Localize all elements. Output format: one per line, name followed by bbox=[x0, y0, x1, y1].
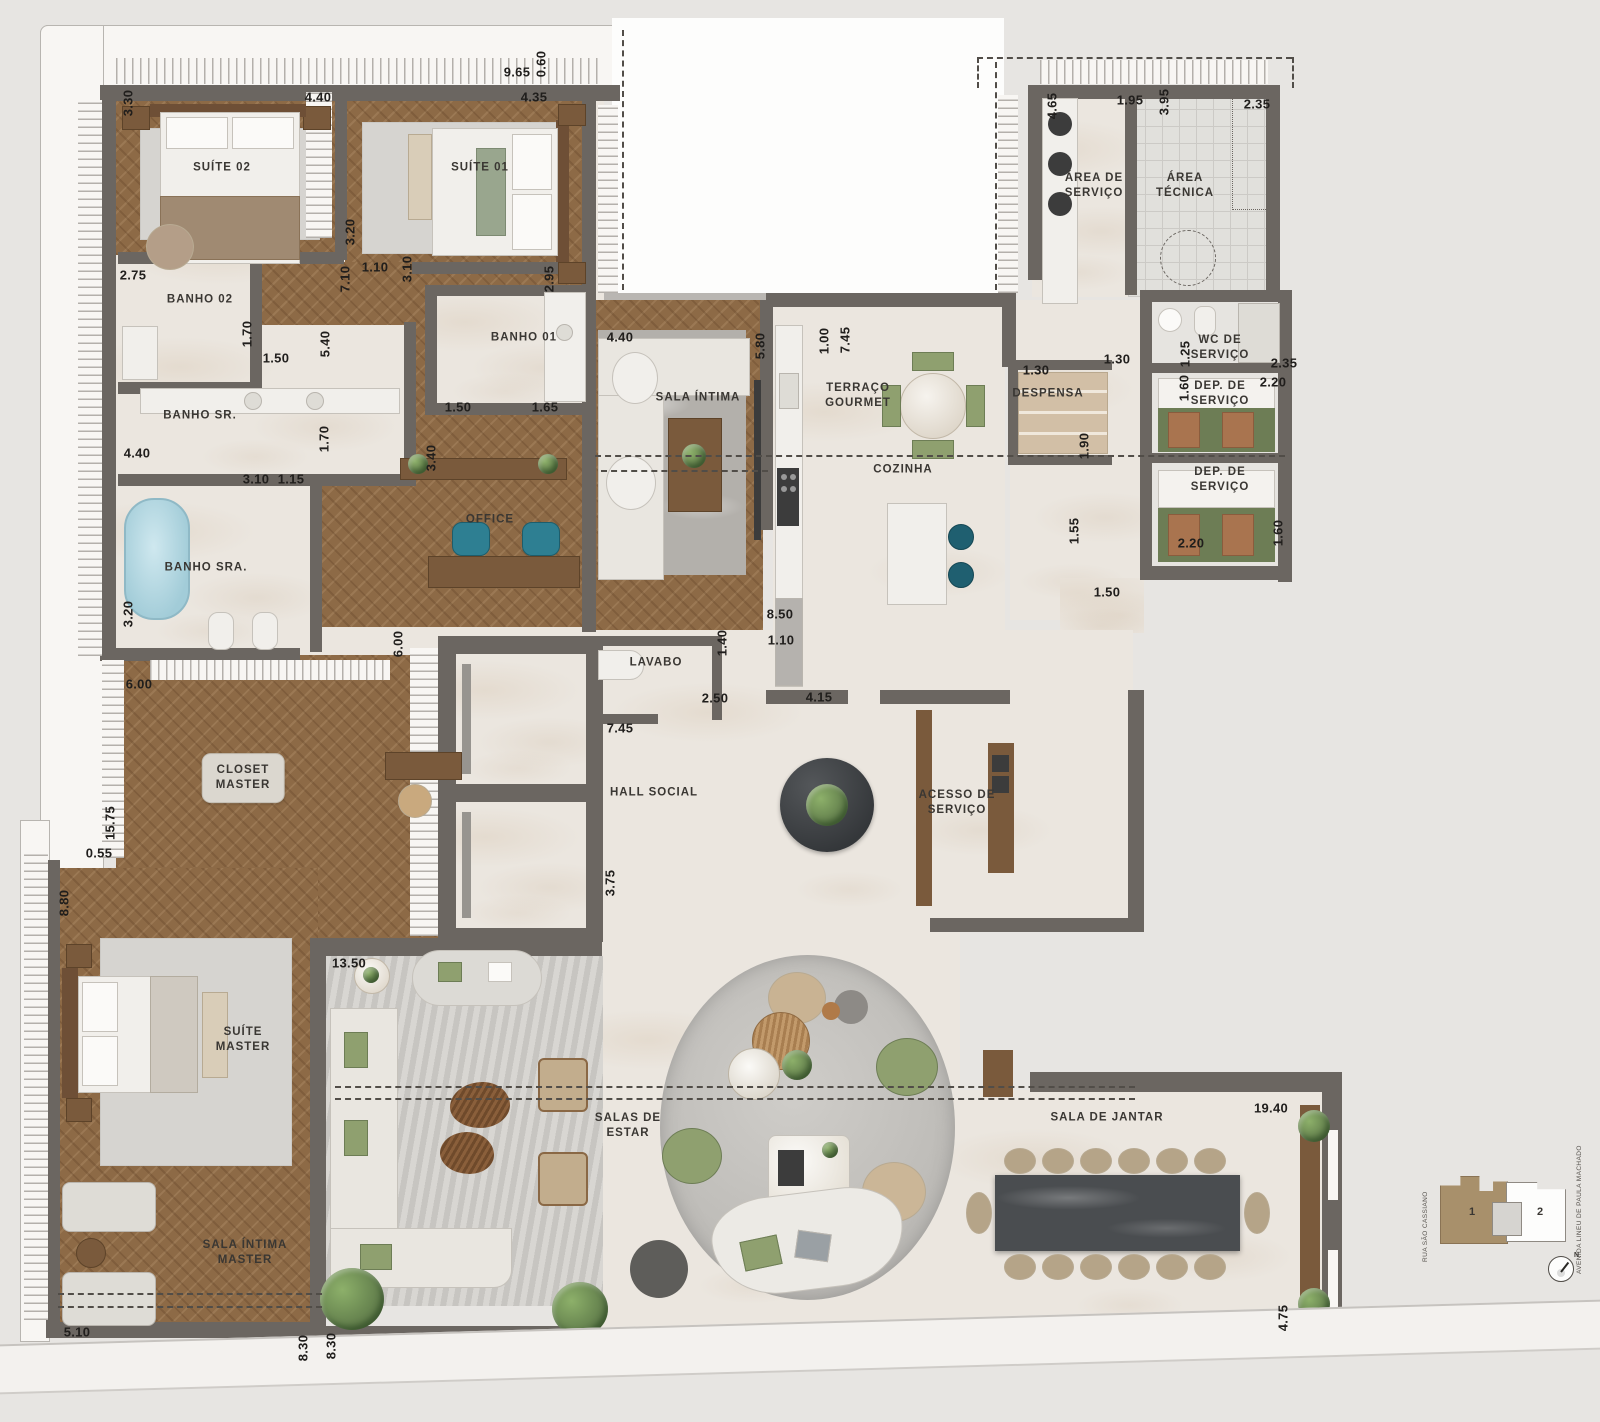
wall bbox=[1125, 95, 1137, 295]
void-dashed-left bbox=[622, 30, 624, 290]
projection-line bbox=[335, 1086, 1135, 1088]
room-label: SALAS DE ESTAR bbox=[595, 1111, 661, 1141]
wc-toilet bbox=[1194, 306, 1216, 336]
dimension-label: 7.45 bbox=[607, 721, 634, 736]
wc-sink bbox=[1158, 308, 1182, 332]
cushion bbox=[344, 1032, 368, 1068]
burner bbox=[781, 486, 787, 492]
plant bbox=[782, 1050, 812, 1080]
sink bbox=[556, 324, 573, 341]
room-label: WC DE SERVIÇO bbox=[1191, 333, 1250, 363]
open-void bbox=[612, 18, 1004, 296]
dining-chair bbox=[1042, 1254, 1074, 1280]
wall bbox=[1008, 360, 1018, 464]
pillow bbox=[512, 134, 552, 190]
dimension-label: 5.10 bbox=[64, 1325, 91, 1340]
plant bbox=[806, 784, 848, 826]
bed-headboard bbox=[62, 968, 78, 1098]
dimension-label: 1.30 bbox=[1104, 352, 1131, 367]
window-strip-bottom-left bbox=[24, 848, 48, 1320]
keyplan-unit-1-number: 1 bbox=[1469, 1206, 1475, 1218]
room-label: HALL SOCIAL bbox=[610, 786, 698, 801]
equipment-circle bbox=[1160, 230, 1216, 286]
dimension-label: 2.50 bbox=[702, 691, 729, 706]
tv-panel bbox=[754, 380, 761, 540]
dining-chair bbox=[1156, 1148, 1188, 1174]
dimension-label: 1.30 bbox=[1023, 363, 1050, 378]
dining-chair bbox=[1004, 1254, 1036, 1280]
window-strip-service bbox=[1040, 60, 1268, 84]
dining-chair bbox=[1080, 1254, 1112, 1280]
window-strip-void-right bbox=[998, 95, 1018, 293]
dining-chair bbox=[966, 1192, 992, 1234]
room-label: ÁREA DE SERVIÇO bbox=[1065, 171, 1124, 201]
room-label: SALA DE JANTAR bbox=[1050, 1111, 1163, 1126]
equipment-outline bbox=[1232, 96, 1276, 210]
wall bbox=[588, 636, 722, 646]
projection-line bbox=[601, 470, 768, 472]
room-label: OFFICE bbox=[466, 513, 514, 528]
gourmet-chair bbox=[912, 352, 954, 371]
dimension-label: 4.40 bbox=[607, 330, 634, 345]
dimension-label: 1.10 bbox=[768, 633, 795, 648]
room-label: DEP. DE SERVIÇO bbox=[1191, 465, 1250, 495]
stool bbox=[948, 524, 974, 550]
gourmet-table bbox=[900, 373, 966, 439]
dimension-label: 9.65 bbox=[504, 65, 531, 80]
north-compass-icon bbox=[1548, 1256, 1574, 1282]
office-desk bbox=[428, 556, 580, 588]
dimension-label: 3.95 bbox=[1157, 89, 1172, 116]
dimension-label: 2.20 bbox=[1260, 375, 1287, 390]
pantry-shelves bbox=[1018, 372, 1108, 454]
wall bbox=[930, 918, 1144, 932]
dining-chair bbox=[1156, 1254, 1188, 1280]
dimension-label: 1.70 bbox=[317, 426, 332, 453]
dimension-label: 4.35 bbox=[521, 90, 548, 105]
dining-chair bbox=[1194, 1148, 1226, 1174]
room-label: CLOSET MASTER bbox=[202, 753, 285, 803]
dimension-label: 2.35 bbox=[1271, 356, 1298, 371]
kitchen-island bbox=[887, 503, 947, 605]
room-label: ÁREA TÉCNICA bbox=[1156, 171, 1214, 201]
dimension-label: 3.20 bbox=[121, 601, 136, 628]
dimension-label: 4.15 bbox=[806, 690, 833, 705]
dimension-label: 1.50 bbox=[445, 400, 472, 415]
side-table bbox=[76, 1238, 106, 1268]
stool bbox=[948, 562, 974, 588]
wall bbox=[1140, 290, 1290, 302]
dining-chair bbox=[1244, 1192, 1270, 1234]
room-label: SALA ÍNTIMA bbox=[656, 391, 741, 406]
wall bbox=[1028, 85, 1042, 280]
boundary-dashed bbox=[1292, 57, 1294, 88]
dimension-label: 1.60 bbox=[1177, 375, 1192, 402]
sink bbox=[306, 392, 324, 410]
organic-table bbox=[440, 1132, 494, 1174]
room-label: ACESSO DE SERVIÇO bbox=[919, 788, 996, 818]
kitchen-sink bbox=[779, 373, 799, 409]
wall bbox=[1030, 1072, 1342, 1092]
wall bbox=[310, 938, 326, 1334]
dimension-label: 3.30 bbox=[121, 90, 136, 117]
wall bbox=[712, 646, 722, 720]
window-strip-left bbox=[78, 100, 102, 656]
dining-chair bbox=[1004, 1148, 1036, 1174]
counter-banho-01 bbox=[544, 292, 586, 402]
north-label: N bbox=[1574, 1252, 1579, 1259]
room-label: TERRAÇO GOURMET bbox=[825, 381, 891, 411]
plant bbox=[1298, 1110, 1330, 1142]
office-chair bbox=[522, 522, 560, 556]
dimension-label: 3.10 bbox=[243, 472, 270, 487]
keyplan-street-left: RUA SÃO CASSIANO bbox=[1422, 1172, 1429, 1262]
dimension-label: 2.35 bbox=[1244, 97, 1271, 112]
wall bbox=[1150, 363, 1290, 373]
terrace-chair bbox=[538, 1152, 588, 1206]
sink-banho-sra bbox=[252, 612, 278, 650]
room-label: BANHO 01 bbox=[491, 331, 557, 346]
nightstand bbox=[66, 1098, 92, 1122]
dimension-label: 7.45 bbox=[838, 327, 853, 354]
dimension-label: 8.30 bbox=[296, 1335, 311, 1362]
elevator-cab-2 bbox=[456, 802, 586, 928]
dimension-label: 1.50 bbox=[263, 351, 290, 366]
dimension-label: 0.60 bbox=[534, 51, 549, 78]
wall bbox=[766, 293, 1016, 307]
room-label: SUÍTE 02 bbox=[193, 161, 251, 176]
dark-stone-circle bbox=[630, 1240, 688, 1298]
room-label: BANHO 02 bbox=[167, 293, 233, 308]
terrace-chair bbox=[538, 1058, 588, 1112]
closet-chair bbox=[398, 784, 432, 818]
stone-stool bbox=[822, 1002, 840, 1020]
plant bbox=[538, 454, 558, 474]
dimension-label: 2.95 bbox=[542, 266, 557, 293]
tree bbox=[320, 1268, 384, 1330]
dining-chair bbox=[1118, 1254, 1150, 1280]
elevator-door-1 bbox=[462, 664, 471, 774]
pillow bbox=[232, 117, 294, 149]
window-strip-top bbox=[116, 58, 604, 84]
dep-pillow bbox=[1222, 514, 1254, 556]
closet-desk bbox=[385, 752, 462, 780]
burner bbox=[790, 486, 796, 492]
table-tray bbox=[778, 1150, 804, 1186]
nightstand bbox=[558, 104, 586, 126]
dining-chair bbox=[1080, 1148, 1112, 1174]
curved-sofa bbox=[412, 950, 542, 1006]
nightstand bbox=[66, 944, 92, 968]
dimension-label: 2.75 bbox=[120, 268, 147, 283]
dining-wood-panel bbox=[983, 1050, 1013, 1097]
wall bbox=[310, 484, 322, 652]
plant bbox=[822, 1142, 838, 1158]
lounge-chair bbox=[606, 456, 656, 510]
chaise bbox=[62, 1272, 156, 1326]
dimension-label: 15.75 bbox=[103, 806, 118, 840]
room-label: COZINHA bbox=[873, 463, 932, 478]
keyplan-unit-2-number: 2 bbox=[1537, 1206, 1543, 1218]
projection-line bbox=[58, 1306, 322, 1308]
dimension-label: 1.70 bbox=[240, 321, 255, 348]
wall bbox=[1002, 307, 1016, 367]
dimension-label: 1.25 bbox=[1178, 341, 1193, 368]
dimension-label: 4.40 bbox=[305, 90, 332, 105]
keyplan-core bbox=[1492, 1202, 1522, 1236]
pillow bbox=[82, 1036, 118, 1086]
cushion bbox=[360, 1244, 392, 1270]
cushion bbox=[438, 962, 462, 982]
pillow bbox=[166, 117, 228, 149]
wall bbox=[1128, 690, 1144, 932]
dining-chair bbox=[1042, 1148, 1074, 1174]
dining-table bbox=[995, 1175, 1240, 1251]
room-label: SUÍTE MASTER bbox=[216, 1025, 271, 1055]
dimension-label: 19.40 bbox=[1254, 1101, 1288, 1116]
floor-plan-canvas: RUA SÃO CASSIANO 1 2 AVENIDA LINEU DE PA… bbox=[0, 0, 1600, 1422]
burner bbox=[781, 474, 787, 480]
bench-suite-01 bbox=[408, 134, 432, 220]
dimension-label: 3.75 bbox=[603, 870, 618, 897]
dimension-label: 1.40 bbox=[715, 630, 730, 657]
dimension-label: 1.65 bbox=[532, 400, 559, 415]
dining-chair bbox=[1118, 1148, 1150, 1174]
wall bbox=[46, 860, 60, 1335]
elevator-door-2 bbox=[462, 812, 471, 918]
boundary-dashed-top bbox=[977, 57, 1292, 59]
dimension-label: 1.10 bbox=[362, 260, 389, 275]
vanity-banho-02 bbox=[122, 326, 158, 380]
dimension-label: 4.65 bbox=[1045, 93, 1060, 120]
dining-window bbox=[1328, 1130, 1338, 1200]
dining-chair bbox=[1194, 1254, 1226, 1280]
room-label: BANHO SRA. bbox=[165, 561, 248, 576]
marble-side-table bbox=[728, 1048, 780, 1100]
dimension-label: 3.20 bbox=[343, 219, 358, 246]
dimension-label: 4.40 bbox=[124, 446, 151, 461]
cushion bbox=[794, 1230, 832, 1262]
wall bbox=[880, 690, 1010, 704]
room-label: SUÍTE 01 bbox=[451, 161, 509, 176]
dimension-label: 3.10 bbox=[400, 256, 415, 283]
cushion bbox=[488, 962, 512, 982]
projection-line bbox=[58, 1293, 322, 1295]
sink-banho-sra bbox=[208, 612, 234, 650]
elevator-cab-1 bbox=[456, 654, 586, 784]
dimension-label: 7.10 bbox=[338, 266, 353, 293]
dimension-label: 1.60 bbox=[1271, 520, 1286, 547]
dimension-label: 8.30 bbox=[324, 1333, 339, 1360]
nightstand bbox=[558, 262, 586, 284]
room-label: BANHO SR. bbox=[163, 409, 237, 424]
projection-line bbox=[335, 1098, 1135, 1100]
armchair-suite-02 bbox=[146, 224, 194, 270]
armchair-green bbox=[662, 1128, 722, 1184]
dimension-label: 4.75 bbox=[1276, 1305, 1291, 1332]
dimension-label: 3.40 bbox=[424, 445, 439, 472]
dep-pillow bbox=[1222, 412, 1254, 448]
nightstand bbox=[303, 106, 331, 130]
organic-table bbox=[450, 1082, 510, 1128]
chaise bbox=[62, 1182, 156, 1232]
dimension-label: 0.55 bbox=[86, 846, 113, 861]
void-dashed-right bbox=[995, 62, 997, 290]
dep-pillow bbox=[1168, 412, 1200, 448]
gourmet-chair bbox=[966, 385, 985, 427]
room-label: LAVABO bbox=[630, 656, 683, 671]
appliance-icon bbox=[992, 755, 1009, 772]
dimension-label: 8.80 bbox=[57, 890, 72, 917]
dimension-label: 1.50 bbox=[1094, 585, 1121, 600]
wall bbox=[1140, 290, 1152, 580]
pillow bbox=[512, 194, 552, 250]
projection-line bbox=[595, 455, 1285, 457]
wall bbox=[1150, 566, 1292, 580]
dimension-label: 1.95 bbox=[1117, 93, 1144, 108]
dimension-label: 6.00 bbox=[391, 631, 406, 658]
dimension-label: 1.55 bbox=[1067, 518, 1082, 545]
dimension-label: 2.20 bbox=[1178, 536, 1205, 551]
bed-throw bbox=[150, 976, 198, 1093]
window-strip-void-left bbox=[598, 105, 618, 293]
wall bbox=[425, 285, 437, 413]
boundary-dashed bbox=[977, 57, 979, 88]
cushion bbox=[344, 1120, 368, 1156]
dimension-label: 1.90 bbox=[1077, 433, 1092, 460]
room-label: DEP. DE SERVIÇO bbox=[1191, 379, 1250, 409]
dimension-label: 1.00 bbox=[817, 328, 832, 355]
dimension-label: 1.15 bbox=[278, 472, 305, 487]
dimension-label: 5.40 bbox=[318, 331, 333, 358]
wall bbox=[100, 85, 116, 660]
dimension-label: 6.00 bbox=[126, 677, 153, 692]
dimension-label: 8.50 bbox=[767, 607, 794, 622]
pillow bbox=[82, 982, 118, 1032]
dimension-label: 5.80 bbox=[753, 333, 768, 360]
burner bbox=[790, 474, 796, 480]
lounge-chair bbox=[612, 352, 658, 404]
keyplan: RUA SÃO CASSIANO 1 2 AVENIDA LINEU DE PA… bbox=[1400, 1160, 1600, 1340]
dimension-label: 13.50 bbox=[332, 956, 366, 971]
wardrobe-closet-top bbox=[150, 660, 390, 680]
sink bbox=[244, 392, 262, 410]
room-label: DESPENSA bbox=[1012, 387, 1083, 402]
room-label: SALA ÍNTIMA MASTER bbox=[203, 1238, 288, 1268]
